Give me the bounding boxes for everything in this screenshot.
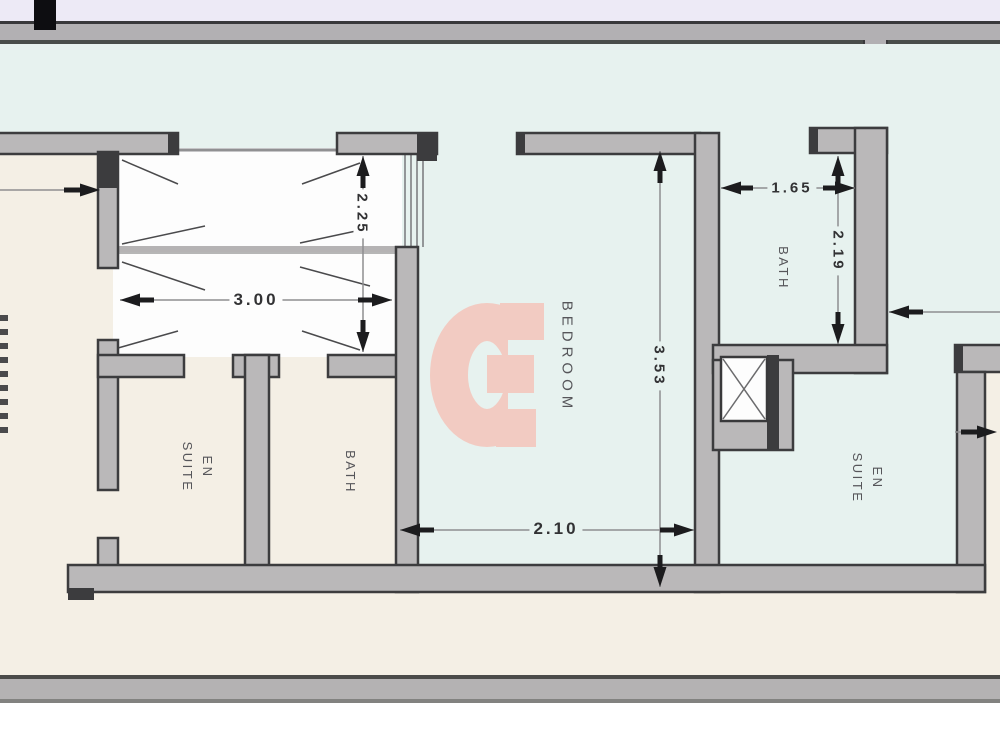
- dim-bath-width: 1.65: [767, 180, 816, 197]
- dim-bedroom-length: 3.53: [651, 341, 668, 390]
- room-label-bedroom: BEDROOM: [555, 301, 578, 414]
- dim-closet-depth: 2.25: [354, 189, 371, 238]
- room-label-en-suite-left: EN SUITE: [177, 442, 217, 493]
- floor-plan: EN SUITE BATH BEDROOM BATH EN SUITE 3.00…: [0, 0, 1000, 750]
- room-label-bath-right: BATH: [773, 246, 793, 290]
- plan-linework: [0, 0, 1000, 750]
- dim-bath-length: 2.19: [830, 226, 847, 275]
- room-label-en-suite-right: EN SUITE: [847, 453, 887, 504]
- en-suite-left-line1: EN: [200, 455, 215, 478]
- en-suite-right-line1: EN: [870, 466, 885, 489]
- dim-closet-width: 3.00: [229, 290, 282, 310]
- clipped-room-label: [0, 315, 8, 440]
- shaft-symbol: [721, 357, 767, 421]
- dim-bedroom-width: 2.10: [529, 519, 582, 539]
- closet-details: [118, 150, 398, 350]
- room-label-bath-left: BATH: [340, 450, 360, 494]
- glazing-lines: [405, 153, 423, 247]
- en-suite-left-line2: SUITE: [180, 442, 195, 493]
- watermark-logo: [449, 303, 560, 447]
- en-suite-right-line2: SUITE: [850, 453, 865, 504]
